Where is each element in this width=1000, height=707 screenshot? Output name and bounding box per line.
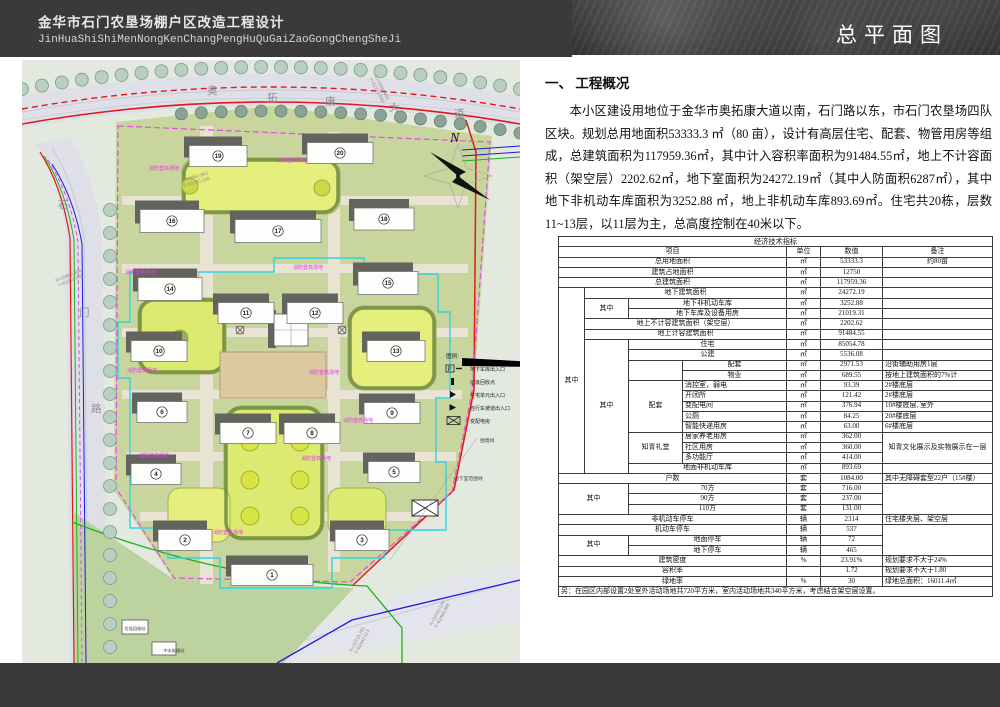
economic-indicator-table: 经济技术指标项目单位数值备注总用地面积㎡53333.3约80亩建筑占地面积㎡12… xyxy=(558,236,993,597)
road-name-char-top: 拓 xyxy=(267,92,278,104)
site-plan-map: N 1920161718141511121013697845231 奥拓康大道石… xyxy=(22,60,520,663)
indicator-cell: 住宅 xyxy=(629,339,787,349)
street-tree xyxy=(155,65,168,78)
street-tree xyxy=(414,68,427,81)
indicator-cell: 智能快递用房 xyxy=(683,422,787,432)
indicator-cell xyxy=(883,484,993,515)
indicator-cell: 配套 xyxy=(683,360,787,370)
indicator-cell: 辆 xyxy=(787,535,821,545)
street-tree xyxy=(274,61,287,74)
street-tree xyxy=(275,105,287,117)
street-tree xyxy=(104,618,117,631)
overview-heading: 一、 工程概况 xyxy=(545,72,998,92)
indicator-cell: 23.91% xyxy=(821,556,883,566)
building-number: 12 xyxy=(311,310,319,317)
building-number: 20 xyxy=(336,150,344,157)
indicator-cell: ㎡ xyxy=(787,319,821,329)
indicator-cell: 91484.55 xyxy=(821,329,883,339)
road-name-char-left: 石 xyxy=(58,199,69,211)
indicator-cell: 公建 xyxy=(629,350,787,360)
street-tree xyxy=(95,71,108,84)
building-19: 19 xyxy=(184,137,247,167)
indicator-cell xyxy=(629,360,683,381)
indicator-cell: 117959.36 xyxy=(821,278,883,288)
building-number: 3 xyxy=(360,537,364,544)
indicator-cell: 非机动车停车 xyxy=(559,515,787,525)
building-20: 20 xyxy=(302,134,373,164)
building-number: 10 xyxy=(155,348,163,355)
indicator-cell: 地面非机动车库 xyxy=(629,463,787,473)
building-number: 7 xyxy=(246,430,250,437)
indicator-cell: 建筑密度 xyxy=(559,556,787,566)
indicator-cell: 套 xyxy=(787,494,821,504)
indicator-cell: 知青文化展示及实物展示在一层 xyxy=(883,432,993,463)
trash-point-icon xyxy=(451,378,454,385)
fire-access-label: 消防登高场地 xyxy=(127,367,157,374)
indicator-cell: 地下车库及设备用房 xyxy=(629,309,787,319)
street-tree xyxy=(494,79,507,92)
indicator-cell: 套 xyxy=(787,484,821,494)
indicator-cell: ㎡ xyxy=(787,329,821,339)
street-tree xyxy=(104,526,117,539)
indicator-cell: 30 xyxy=(821,576,883,586)
fire-access-label: 消防登高场地 xyxy=(213,529,243,536)
title-band-photo: 总平面图 xyxy=(572,0,1000,57)
fire-access-label: 消防登高场地 xyxy=(139,452,169,459)
street-tree xyxy=(104,204,117,217)
street-tree xyxy=(235,61,248,74)
indicator-cell: ㎡ xyxy=(787,267,821,277)
street-tree xyxy=(104,365,117,378)
road-name-char-top: 奥 xyxy=(207,84,218,97)
indicator-cell: 开闭所 xyxy=(683,391,787,401)
title-band: 金华市石门农垦场棚户区改造工程设计 JinHuaShiShiMenNongKen… xyxy=(0,0,1000,57)
indicator-cell: ㎡ xyxy=(787,309,821,319)
street-tree xyxy=(355,108,367,120)
building-17: 17 xyxy=(230,211,321,243)
street-tree xyxy=(375,109,387,121)
street-tree xyxy=(104,549,117,562)
building-6: 6 xyxy=(132,393,187,423)
street-tree xyxy=(474,76,487,89)
street-tree xyxy=(255,105,267,117)
indicator-cell: 沿街辅助用房1层 xyxy=(883,360,993,370)
overview-paragraph: 本小区建设用地位于金华市奥拓康大道以南，石门路以东，市石门农垦场四队区块。规划总… xyxy=(545,100,992,235)
building-number: 14 xyxy=(166,286,174,293)
street-tree xyxy=(294,61,307,74)
building-number: 2 xyxy=(183,537,187,544)
indicator-cell: 其中 xyxy=(585,339,629,473)
indicator-cell: 按地上建筑面积的7%计 xyxy=(883,370,993,380)
street-tree xyxy=(295,105,307,117)
indicator-cell: 绿地率 xyxy=(559,576,787,586)
indicator-cell: 10#楼底层, 室外 xyxy=(883,401,993,411)
street-tree xyxy=(104,319,117,332)
parking-icon-p: P xyxy=(448,367,452,373)
street-tree xyxy=(434,71,447,84)
indicator-cell: 24272.19 xyxy=(821,288,883,298)
indicator-cell: 总用地面积 xyxy=(559,257,787,267)
indicator-cell: 知青礼堂 xyxy=(629,432,683,463)
indicator-cell: 规划要求不大于1.80 xyxy=(883,566,993,576)
sheet-title: 总平面图 xyxy=(836,19,948,49)
road-name-char-top: 道 xyxy=(454,107,465,120)
indicator-cell: 90方 xyxy=(629,494,787,504)
indicator-cell xyxy=(883,278,993,288)
indicator-cell: 配套 xyxy=(629,381,683,432)
map-annotation: 地下室范围线 xyxy=(454,475,483,482)
indicator-cell: 85054.78 xyxy=(821,339,883,349)
indicator-cell: 套 xyxy=(787,473,821,483)
building-number: 1 xyxy=(270,572,274,579)
indicator-cell: 20#楼底层 xyxy=(883,412,993,422)
indicator-cell: 131.00 xyxy=(821,504,883,514)
indicator-cell: % xyxy=(787,576,821,586)
street-tree xyxy=(135,66,148,79)
indicator-cell: ㎡ xyxy=(787,442,821,452)
building-number: 9 xyxy=(390,410,394,417)
building-16: 16 xyxy=(135,201,204,233)
building-number: 13 xyxy=(392,348,400,355)
indicator-cell: 绿地总面积：16011.4㎡ xyxy=(883,576,993,586)
building-1: 1 xyxy=(226,556,313,586)
north-label: N xyxy=(449,131,460,146)
indicator-cell: ㎡ xyxy=(787,422,821,432)
bottom-band xyxy=(0,663,1000,707)
indicator-cell: 72 xyxy=(821,535,883,545)
indicator-cell: 单位 xyxy=(787,247,821,257)
building-15: 15 xyxy=(353,263,418,295)
street-tree xyxy=(104,296,117,309)
indicator-cell xyxy=(883,267,993,277)
fire-access-label: 消防登高场地 xyxy=(149,165,179,172)
indicator-cell: ㎡ xyxy=(787,391,821,401)
utility-label: 垃圾回收站 xyxy=(125,625,146,632)
indicator-cell: 376.94 xyxy=(821,401,883,411)
street-tree xyxy=(104,480,117,493)
indicator-cell: 716.00 xyxy=(821,484,883,494)
street-tree xyxy=(104,342,117,355)
indicator-cell: 12750 xyxy=(821,267,883,277)
indicator-cell xyxy=(883,339,993,349)
building-4: 4 xyxy=(126,455,181,485)
indicator-cell xyxy=(883,298,993,308)
indicator-cell: 237.00 xyxy=(821,494,883,504)
street-tree xyxy=(215,106,227,118)
indicator-cell: 121.42 xyxy=(821,391,883,401)
street-tree xyxy=(434,115,446,127)
indicator-cell: 地上不计容建筑面积（架空层） xyxy=(585,319,787,329)
fire-access-label: 消防登高场地 xyxy=(343,417,373,424)
indicator-cell: ㎡ xyxy=(787,350,821,360)
building-13: 13 xyxy=(362,332,425,362)
fire-access-label: 消防登高场地 xyxy=(293,264,323,271)
street-tree xyxy=(195,107,207,119)
indicator-cell: 地下停车 xyxy=(629,545,787,555)
indicator-cell: 2202.62 xyxy=(821,319,883,329)
indicator-cell: 辆 xyxy=(787,545,821,555)
indicator-cell: 地下非机动车库 xyxy=(629,298,787,308)
indicator-cell: 物业 xyxy=(683,370,787,380)
indicator-cell: 63.00 xyxy=(821,422,883,432)
building-number: 16 xyxy=(168,218,176,225)
indicator-cell: ㎡ xyxy=(787,288,821,298)
indicator-cell: 地上计容建筑面积 xyxy=(585,329,787,339)
street-tree xyxy=(334,62,347,75)
transformer-symbol xyxy=(412,500,438,516)
building-number: 6 xyxy=(160,409,164,416)
indicator-cell: 项目 xyxy=(559,247,787,257)
street-tree xyxy=(195,62,208,75)
building-number: 4 xyxy=(154,471,158,478)
street-tree xyxy=(104,388,117,401)
indicator-cell: ㎡ xyxy=(787,453,821,463)
indicator-cell: 居家养老用房 xyxy=(683,432,787,442)
indicator-cell: 414.00 xyxy=(821,453,883,463)
indicator-cell: 规划要求不大于24% xyxy=(883,556,993,566)
indicator-cell xyxy=(787,566,821,576)
street-tree xyxy=(474,121,486,133)
indicator-cell: 3252.88 xyxy=(821,298,883,308)
building-11: 11 xyxy=(213,294,274,324)
road-name-char-left: 路 xyxy=(91,402,102,415)
street-tree xyxy=(335,107,347,119)
indicator-cell: 公厕 xyxy=(683,412,787,422)
building-2: 2 xyxy=(153,521,212,551)
project-title-pinyin: JinHuaShiShiMenNongKenChangPengHuQuGaiZa… xyxy=(38,34,572,46)
fire-access-label: 消防登高场地 xyxy=(309,369,339,376)
indicator-cell: 社区用房 xyxy=(683,442,787,452)
indicator-cell: 360.00 xyxy=(821,442,883,452)
street-tree xyxy=(104,641,117,654)
street-tree xyxy=(104,572,117,585)
building-number: 11 xyxy=(243,310,250,317)
indicator-cell: 84.25 xyxy=(821,412,883,422)
street-tree xyxy=(55,76,68,89)
legend-label: 垃圾回收点 xyxy=(470,379,495,386)
indicator-cell: 备注 xyxy=(883,247,993,257)
indicator-cell: ㎡ xyxy=(787,339,821,349)
street-tree xyxy=(175,63,188,76)
road-name-char-left: 门 xyxy=(79,306,90,319)
building-number: 18 xyxy=(380,216,388,223)
street-tree xyxy=(104,227,117,240)
legend-label: 变配电房 xyxy=(470,418,490,425)
street-tree xyxy=(175,108,187,120)
drawing-sheet: 金华市石门农垦场棚户区改造工程设计 JinHuaShiShiMenNongKen… xyxy=(0,0,1000,707)
indicator-cell: ㎡ xyxy=(787,432,821,442)
street-tree xyxy=(354,63,367,76)
indicator-cell: 893.69 xyxy=(821,463,883,473)
indicator-cell: 其中 xyxy=(559,288,585,473)
indicator-cell: ㎡ xyxy=(787,360,821,370)
indicator-cell: 537 xyxy=(821,525,883,535)
indicator-cell: 另：在园区内部设置2处室外活动场地共720平方米，室内活动场地共340平方米，考… xyxy=(559,587,993,597)
building-12: 12 xyxy=(282,294,343,324)
indicator-cell: 地下建筑面积 xyxy=(585,288,787,298)
street-tree xyxy=(35,79,48,92)
indicator-cell xyxy=(883,329,993,339)
indicator-cell: 2#楼底层 xyxy=(883,381,993,391)
building-10: 10 xyxy=(126,332,187,362)
indicator-cell xyxy=(883,319,993,329)
indicator-cell: 辆 xyxy=(787,525,821,535)
building-3: 3 xyxy=(330,521,389,551)
indicator-cell: 变配电间 xyxy=(683,401,787,411)
street-tree xyxy=(414,113,426,125)
indicator-cell xyxy=(883,288,993,298)
indicator-cell: 1.72 xyxy=(821,566,883,576)
title-block: 金华市石门农垦场棚户区改造工程设计 JinHuaShiShiMenNongKen… xyxy=(0,0,572,57)
indicator-cell: ㎡ xyxy=(787,412,821,422)
building-number: 5 xyxy=(392,469,396,476)
indicator-cell: ㎡ xyxy=(787,298,821,308)
indicator-cell: 5536.08 xyxy=(821,350,883,360)
indicator-cell: 住宅楼夹层、架空层 xyxy=(883,515,993,525)
street-tree xyxy=(104,595,117,608)
indicator-cell: 2971.53 xyxy=(821,360,883,370)
map-annotation: 围墙线 xyxy=(480,437,495,444)
indicator-cell: % xyxy=(787,556,821,566)
street-tree xyxy=(104,503,117,516)
indicator-cell: ㎡ xyxy=(787,463,821,473)
road-name-char-top: 大 xyxy=(389,101,400,114)
street-tree xyxy=(314,61,327,74)
indicator-cell: 其中无障碍套型22户（15#楼） xyxy=(883,473,993,483)
street-tree xyxy=(104,457,117,470)
building-number: 8 xyxy=(310,430,314,437)
indicator-cell: 93.39 xyxy=(821,381,883,391)
indicator-cell: ㎡ xyxy=(787,401,821,411)
street-tree xyxy=(235,105,247,117)
building-number: 17 xyxy=(274,228,282,235)
indicator-cell: ㎡ xyxy=(787,278,821,288)
indicator-cell: 465 xyxy=(821,545,883,555)
indicator-cell: 689.55 xyxy=(821,370,883,380)
building-number: 15 xyxy=(384,280,392,287)
street-tree xyxy=(394,66,407,79)
indicator-cell: 110方 xyxy=(629,504,787,514)
indicator-cell: 70方 xyxy=(629,484,787,494)
indicator-cell: 约80亩 xyxy=(883,257,993,267)
building-7: 7 xyxy=(215,414,276,444)
indicator-cell: 辆 xyxy=(787,515,821,525)
indicator-cell: 6#楼底层 xyxy=(883,422,993,432)
fire-access-label: 消防登高场地 xyxy=(277,157,307,164)
utility-label: 中水处理站 xyxy=(164,647,185,654)
indicator-table-wrap: 经济技术指标项目单位数值备注总用地面积㎡53333.3约80亩建筑占地面积㎡12… xyxy=(558,236,992,597)
street-tree xyxy=(75,73,88,86)
building-18: 18 xyxy=(349,199,414,230)
indicator-cell: 套 xyxy=(787,504,821,514)
indicator-cell: 多功能厅 xyxy=(683,453,787,463)
street-tree xyxy=(215,61,228,74)
street-tree xyxy=(454,73,467,86)
indicator-cell xyxy=(883,525,993,556)
street-tree xyxy=(255,61,268,74)
road-name-char-top: 康 xyxy=(325,95,336,108)
indicator-cell xyxy=(883,350,993,360)
indicator-cell: 户数 xyxy=(559,473,787,483)
building-number: 19 xyxy=(214,153,222,160)
indicator-cell: 其中 xyxy=(585,298,629,319)
indicator-cell xyxy=(883,463,993,473)
indicator-cell: 容积率 xyxy=(559,566,787,576)
indicator-cell: 总建筑面积 xyxy=(559,278,787,288)
indicator-cell: 其中 xyxy=(559,535,629,556)
indicator-cell: 经济技术指标 xyxy=(559,237,993,247)
indicator-cell: 建筑占地面积 xyxy=(559,267,787,277)
indicator-cell: 1084.00 xyxy=(821,473,883,483)
overview-panel: 一、 工程概况 本小区建设用地位于金华市奥拓康大道以南，石门路以东，市石门农垦场… xyxy=(530,60,998,660)
project-title-cn: 金华市石门农垦场棚户区改造工程设计 xyxy=(38,11,572,31)
street-tree xyxy=(104,273,117,286)
indicator-cell: ㎡ xyxy=(787,381,821,391)
indicator-cell: ㎡ xyxy=(787,257,821,267)
street-tree xyxy=(104,434,117,447)
indicator-cell: ㎡ xyxy=(787,370,821,380)
building-5: 5 xyxy=(363,453,420,483)
indicator-cell: 机动车停车 xyxy=(559,525,787,535)
indicator-cell: 362.00 xyxy=(821,432,883,442)
indicator-cell: 其中 xyxy=(559,484,629,515)
indicator-cell: 21019.31 xyxy=(821,309,883,319)
legend-label: 地下车库出入口 xyxy=(470,366,505,373)
indicator-cell: 消控室，弱电 xyxy=(683,381,787,391)
street-tree xyxy=(104,250,117,263)
fire-access-label: 消防登高场地 xyxy=(125,269,155,276)
legend-label: 住宅单元出入口 xyxy=(470,392,505,399)
indicator-cell: 2#楼底层 xyxy=(883,391,993,401)
indicator-cell: 2314 xyxy=(821,515,883,525)
street-tree xyxy=(104,411,117,424)
building-8: 8 xyxy=(279,414,340,444)
indicator-cell: 数值 xyxy=(821,247,883,257)
street-tree xyxy=(494,124,506,136)
fire-access-label: 消防登高场地 xyxy=(301,455,331,462)
indicator-cell: 53333.3 xyxy=(821,257,883,267)
indicator-cell xyxy=(883,309,993,319)
legend-title: 图例: xyxy=(446,352,459,360)
indicator-cell: 地面停车 xyxy=(629,535,787,545)
legend-label: 自行车坡道出入口 xyxy=(470,405,510,412)
street-tree xyxy=(115,68,128,81)
